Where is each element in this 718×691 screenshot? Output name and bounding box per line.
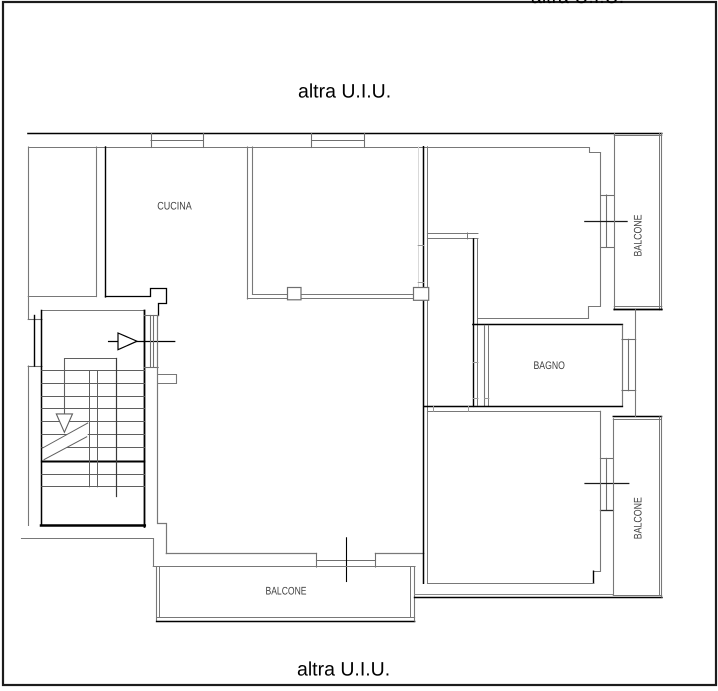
svg-text:altra U.I.U.: altra U.I.U. <box>531 0 624 8</box>
svg-text:BAGNO: BAGNO <box>534 360 566 372</box>
svg-text:BALCONE: BALCONE <box>633 497 645 539</box>
svg-text:BALCONE: BALCONE <box>265 586 306 598</box>
svg-text:altra U.I.U.: altra U.I.U. <box>298 80 391 102</box>
svg-text:altra U.I.U.: altra U.I.U. <box>297 658 390 680</box>
svg-text:CUCINA: CUCINA <box>157 201 192 213</box>
svg-text:BALCONE: BALCONE <box>633 214 645 256</box>
